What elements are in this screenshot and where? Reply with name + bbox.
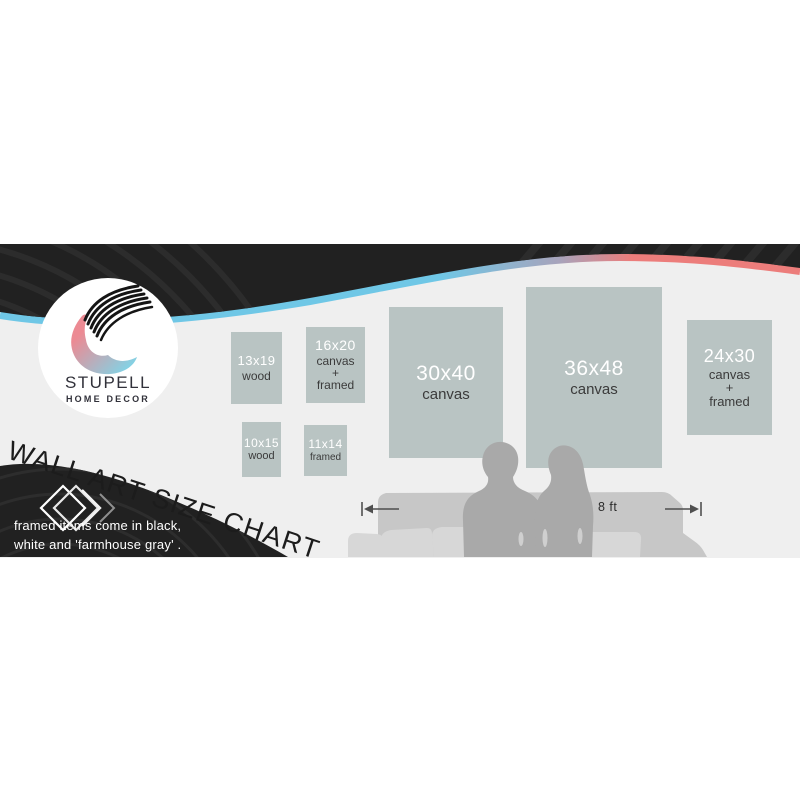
brand-name: STUPELL bbox=[38, 373, 178, 393]
measurement-label: 8 ft bbox=[598, 500, 617, 514]
page: { "brand": { "name": "STUPELL", "subtitl… bbox=[0, 0, 800, 800]
brand-logo: STUPELL HOME DECOR bbox=[38, 278, 178, 418]
size-chart-banner: 13x19 wood 16x20 canvas + framed 10x15 w… bbox=[0, 244, 800, 558]
note-line-2: white and 'farmhouse gray' . bbox=[14, 537, 181, 552]
note-line-1: framed items come in black, bbox=[14, 518, 181, 533]
brand-subtitle: HOME DECOR bbox=[38, 394, 178, 404]
couple-silhouette bbox=[463, 442, 593, 557]
